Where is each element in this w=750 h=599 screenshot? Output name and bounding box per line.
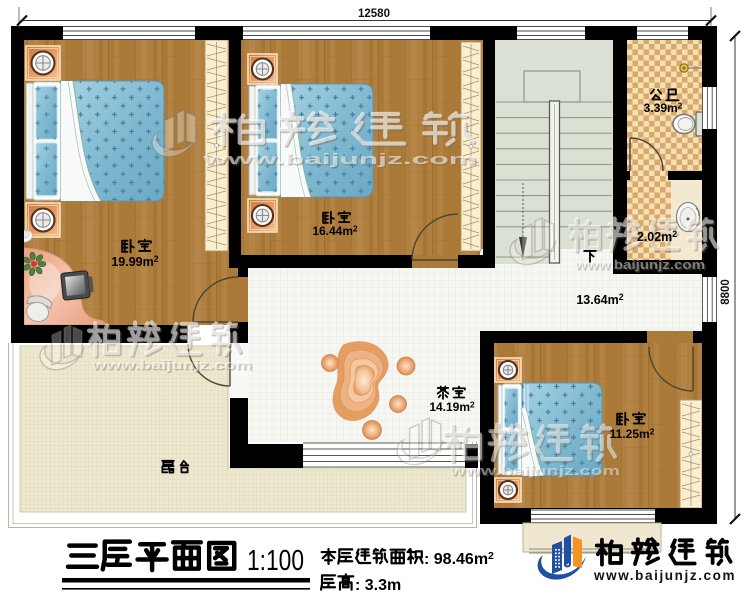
svg-text:www.baijunjz.com: www.baijunjz.com <box>593 568 736 583</box>
svg-text:1:100: 1:100 <box>247 545 304 577</box>
svg-text:3.39m2: 3.39m2 <box>644 100 683 115</box>
svg-text:www.baijunjz.com: www.baijunjz.com <box>91 358 252 372</box>
svg-text:16.44m2: 16.44m2 <box>312 223 358 238</box>
svg-text:www.baijunjz.com: www.baijunjz.com <box>574 257 705 272</box>
svg-text:19.99m2: 19.99m2 <box>111 254 158 269</box>
svg-text:14.19m2: 14.19m2 <box>429 399 475 414</box>
svg-text:: 3.3m: : 3.3m <box>355 577 401 594</box>
svg-text:: 98.46m2: : 98.46m2 <box>424 550 494 568</box>
svg-text:2.02m2: 2.02m2 <box>637 229 677 244</box>
svg-text:12580: 12580 <box>358 8 390 20</box>
svg-text:8800: 8800 <box>720 279 732 305</box>
svg-text:13.64m2: 13.64m2 <box>576 292 623 307</box>
svg-text:www.baijunjz.com: www.baijunjz.com <box>201 151 477 168</box>
svg-text:11.25m2: 11.25m2 <box>610 426 655 441</box>
svg-text:www.baijunjz.com: www.baijunjz.com <box>448 463 620 478</box>
